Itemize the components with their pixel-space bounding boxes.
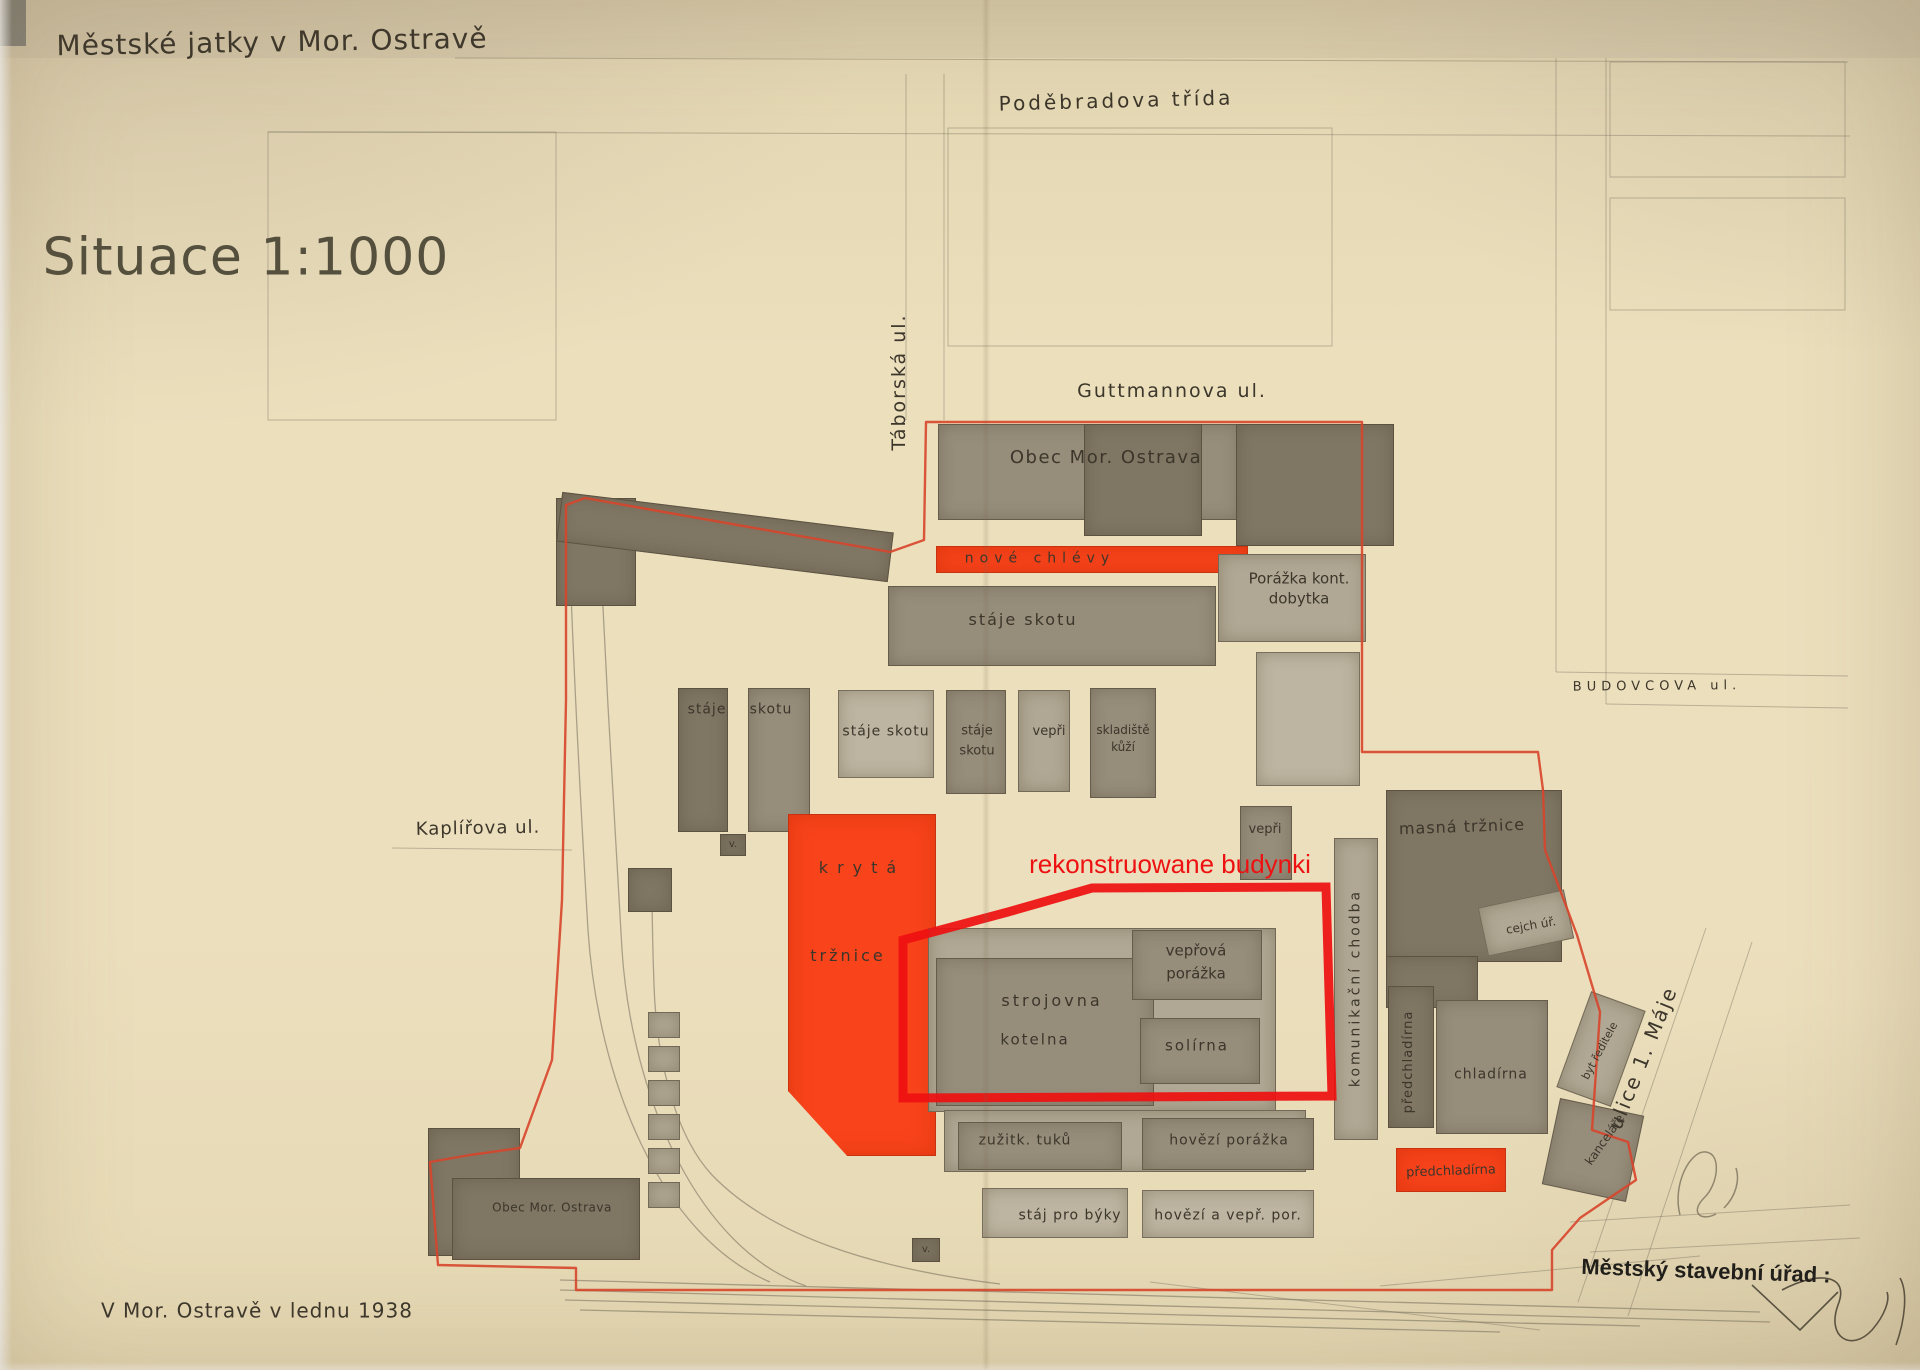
bld-label-porazka-kont: Porážka kont. dobytka (1249, 570, 1350, 609)
bld-label-strojovna: strojovna (1001, 991, 1102, 1011)
bld-label-predchladirna-2: předchladírna (1406, 1162, 1496, 1181)
bld-label-v-2: v. (922, 1244, 930, 1257)
street-kaplirova: Kaplířova ul. (416, 817, 541, 842)
street-podebradova: Poděbradova třída (998, 85, 1233, 116)
date-label: V Mor. Ostravě v lednu 1938 (101, 1299, 413, 1324)
bld-label-komunikacni-chodba: komunikační chodba (1347, 889, 1365, 1087)
bld-label-obec-bottom: Obec Mor. Ostrava (492, 1201, 612, 1216)
bld-label-cejch-ur: cejch úř. (1505, 914, 1557, 938)
bld-label-solirna: solírna (1165, 1037, 1229, 1056)
bld-label-hovezi-vepr-por: hovězí a vepř. por. (1154, 1207, 1302, 1225)
bld-label-vepri-2: vepři (1249, 822, 1282, 838)
street-taborska: Táborská ul. (888, 313, 912, 450)
bld-label-trznice: tržnice (810, 946, 885, 966)
street-budovcova: BUDOVCOVA ul. (1573, 678, 1742, 696)
scale-label: Situace 1:1000 (43, 226, 450, 291)
bld-label-predchladirna-1: předchladírna (1401, 1011, 1417, 1114)
plan-title: Městské jatky v Mor. Ostravě (56, 21, 488, 64)
bld-label-hovezi-porazka: hovězí porážka (1169, 1132, 1289, 1150)
bld-label-masna-trznice: masná tržnice (1399, 815, 1526, 839)
labels-layer: Městské jatky v Mor. OstravěSituace 1:10… (0, 0, 1920, 1370)
bld-label-staje-2: stáje (688, 701, 727, 719)
site-plan-scan: Městské jatky v Mor. OstravěSituace 1:10… (0, 0, 1920, 1370)
bld-label-veprova-porazka: vepřová porážka (1166, 940, 1227, 985)
bld-label-zuzitk-tuku: zužitk. tuků (979, 1132, 1072, 1150)
paper-edge-bottom (0, 1362, 1920, 1370)
bld-label-vepri-1: vepři (1033, 724, 1066, 740)
street-guttmannova: Guttmannova ul. (1077, 380, 1267, 404)
bld-label-chladirna: chladírna (1454, 1066, 1528, 1084)
bld-label-skladiste-kuzi: skladiště kůží (1096, 722, 1149, 756)
paper-fold-line (982, 0, 990, 1370)
paper-edge-left (0, 0, 12, 1370)
bld-label-v-1: v. (729, 839, 737, 852)
bld-label-obec-top: Obec Mor. Ostrava (1010, 447, 1202, 470)
bld-label-kotelna: kotelna (1000, 1031, 1069, 1050)
bld-label-byt-reditele: byt ředitele (1579, 1020, 1621, 1082)
bld-label-staje-skotu-3: stáje skotu (842, 723, 929, 741)
stamp-label: Městský stavební úřad : (1581, 1253, 1831, 1289)
bld-label-staj-pro-byky: stáj pro býky (1018, 1207, 1121, 1225)
bld-label-skotu-2: skotu (750, 701, 793, 719)
overlay-annotation: rekonstruowane budynki (1029, 848, 1311, 881)
bld-label-kryta: krytá (819, 858, 905, 878)
